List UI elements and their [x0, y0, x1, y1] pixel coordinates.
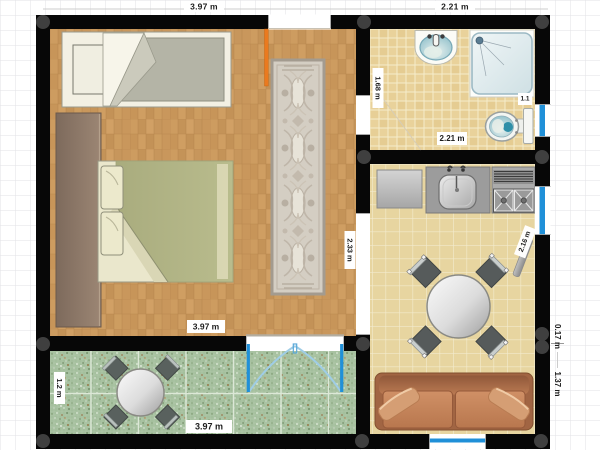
svg-text:2.21 m: 2.21 m: [441, 2, 469, 12]
svg-text:3.97 m: 3.97 m: [195, 422, 223, 432]
svg-text:1.37 m: 1.37 m: [553, 372, 562, 397]
svg-text:1.68 m: 1.68 m: [374, 76, 383, 100]
svg-text:3.97 m: 3.97 m: [190, 2, 218, 12]
svg-text:0.17 m: 0.17 m: [553, 324, 562, 349]
svg-text:2.21 m: 2.21 m: [440, 134, 465, 143]
svg-text:1.1: 1.1: [520, 96, 529, 103]
svg-text:2.33 m: 2.33 m: [346, 238, 355, 262]
svg-text:3.97 m: 3.97 m: [193, 322, 220, 332]
svg-text:1.2 m: 1.2 m: [55, 378, 64, 398]
